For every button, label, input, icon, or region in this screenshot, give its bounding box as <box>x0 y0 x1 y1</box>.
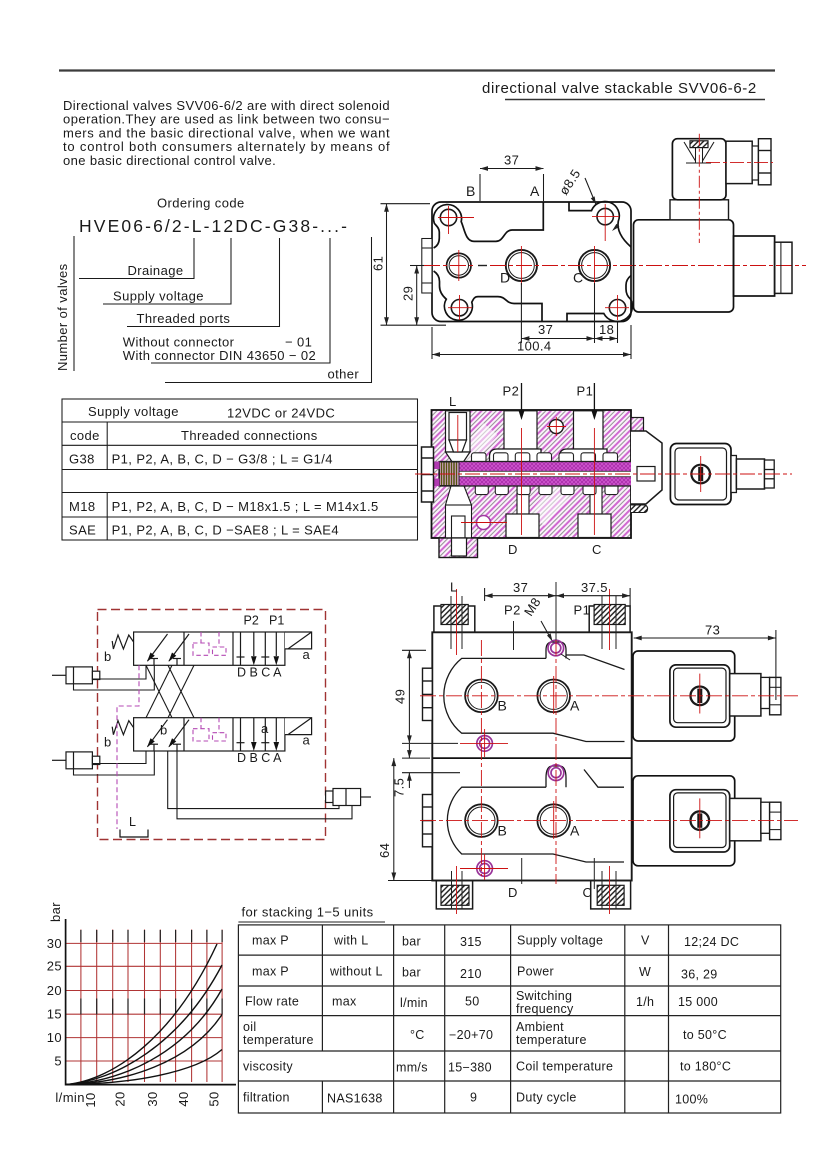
svg-text:P2: P2 <box>503 384 520 399</box>
svg-text:P1: P1 <box>577 384 594 399</box>
svg-text:61: 61 <box>371 256 386 271</box>
svg-text:20: 20 <box>113 1091 128 1106</box>
svg-text:b: b <box>160 723 167 738</box>
svg-text:bar: bar <box>402 935 421 949</box>
svg-text:D: D <box>508 885 518 900</box>
svg-text:temperature: temperature <box>243 1033 314 1047</box>
svg-text:50: 50 <box>465 995 480 1009</box>
svg-text:l/min: l/min <box>400 996 428 1010</box>
svg-text:Supply voltage: Supply voltage <box>113 289 204 304</box>
svg-text:C: C <box>573 270 583 286</box>
svg-text:B: B <box>498 698 507 714</box>
svg-text:with L: with L <box>333 934 368 948</box>
svg-text:max P: max P <box>252 965 289 979</box>
svg-text:Supply voltage: Supply voltage <box>88 404 179 419</box>
svg-text:P1, P2, A, B, C, D − G3/8 ; L: P1, P2, A, B, C, D − G3/8 ; L = G1/4 <box>112 452 333 467</box>
svg-text:oil: oil <box>243 1020 256 1034</box>
svg-text:315: 315 <box>460 935 482 949</box>
svg-text:Threaded connections: Threaded connections <box>181 428 318 443</box>
svg-text:Switching: Switching <box>516 989 572 1003</box>
svg-text:73: 73 <box>705 623 720 638</box>
svg-text:9: 9 <box>470 1091 477 1105</box>
svg-text:15−380: 15−380 <box>448 1061 492 1075</box>
svg-text:bar: bar <box>402 966 421 980</box>
svg-text:for stacking 1−5 units: for stacking 1−5 units <box>242 905 374 920</box>
svg-text:A: A <box>570 698 580 714</box>
svg-text:max: max <box>332 995 357 1009</box>
svg-text:M8: M8 <box>521 595 544 619</box>
svg-text:64: 64 <box>377 843 392 858</box>
svg-text:frequency: frequency <box>516 1002 574 1016</box>
svg-text:a: a <box>303 647 311 662</box>
svg-text:Ordering code: Ordering code <box>157 196 245 211</box>
svg-text:A: A <box>530 183 540 199</box>
svg-text:Drainage: Drainage <box>128 263 184 278</box>
svg-text:D B C A: D B C A <box>237 751 282 765</box>
svg-text:ø8.5: ø8.5 <box>556 166 584 197</box>
svg-text:other: other <box>328 367 360 382</box>
svg-text:18: 18 <box>599 322 614 337</box>
svg-text:Coil temperature: Coil temperature <box>516 1060 613 1074</box>
svg-text:SAE: SAE <box>69 523 96 538</box>
svg-text:10: 10 <box>47 1030 62 1045</box>
svg-text:W: W <box>639 965 651 979</box>
svg-text:30: 30 <box>145 1091 160 1106</box>
svg-text:P2: P2 <box>244 614 259 628</box>
svg-text:Power: Power <box>517 965 554 979</box>
svg-text:P1, P2, A, B, C, D − M18x1.5 ;: P1, P2, A, B, C, D − M18x1.5 ; L = M14x1… <box>112 499 379 514</box>
svg-text:210: 210 <box>460 967 482 981</box>
svg-text:A: A <box>570 823 580 839</box>
svg-text:a: a <box>303 733 311 748</box>
svg-text:12;24 DC: 12;24 DC <box>684 935 739 949</box>
svg-text:without L: without L <box>329 965 383 979</box>
svg-text:37.5: 37.5 <box>581 580 608 595</box>
svg-text:Flow rate: Flow rate <box>245 995 299 1009</box>
svg-text:100%: 100% <box>675 1093 708 1107</box>
svg-text:30: 30 <box>47 936 62 951</box>
svg-text:P1: P1 <box>574 603 591 618</box>
svg-text:5: 5 <box>54 1053 62 1068</box>
svg-text:37: 37 <box>538 322 553 337</box>
svg-text:L: L <box>450 580 458 595</box>
svg-text:Threaded ports: Threaded ports <box>137 311 231 326</box>
svg-text:15: 15 <box>47 1007 62 1022</box>
svg-text:mm/s: mm/s <box>396 1061 428 1075</box>
svg-text:B: B <box>498 823 507 839</box>
svg-text:Duty cycle: Duty cycle <box>516 1091 577 1105</box>
svg-text:max P: max P <box>252 934 289 948</box>
svg-text:to 50°C: to 50°C <box>683 1028 727 1042</box>
svg-text:b: b <box>104 735 111 750</box>
svg-text:37: 37 <box>513 580 528 595</box>
svg-text:1/h: 1/h <box>636 995 654 1009</box>
svg-text:Number of valves: Number of valves <box>55 263 70 371</box>
svg-text:M18: M18 <box>69 499 96 514</box>
svg-text:C: C <box>583 885 593 900</box>
svg-text:P2: P2 <box>504 603 521 618</box>
svg-text:to 180°C: to 180°C <box>680 1060 731 1074</box>
svg-text:With connector DIN 43650 − 02: With connector DIN 43650 − 02 <box>123 348 316 363</box>
svg-text:directional valve stackable: directional valve stackable SVV06-6-2 <box>482 80 757 97</box>
svg-text:12VDC or 24VDC: 12VDC or 24VDC <box>227 406 335 421</box>
svg-text:Supply voltage: Supply voltage <box>517 934 603 948</box>
svg-text:20: 20 <box>47 983 62 998</box>
svg-text:B: B <box>466 183 475 199</box>
svg-text:L: L <box>129 815 136 829</box>
svg-text:P1, P2, A, B, C, D −SAE8 ; L =: P1, P2, A, B, C, D −SAE8 ; L = SAE4 <box>112 523 339 538</box>
svg-text:V: V <box>641 934 650 948</box>
svg-text:Ambient: Ambient <box>516 1020 564 1034</box>
svg-text:NAS1638: NAS1638 <box>327 1092 383 1106</box>
svg-text:code: code <box>70 428 100 443</box>
svg-text:HVE06-6/2-L-12DC-G38-...-: HVE06-6/2-L-12DC-G38-...- <box>79 216 347 236</box>
svg-text:D: D <box>500 270 510 286</box>
svg-text:−20+70: −20+70 <box>449 1028 493 1042</box>
svg-text:D B C A: D B C A <box>237 666 282 680</box>
svg-text:C: C <box>592 542 602 557</box>
svg-text:40: 40 <box>176 1091 191 1106</box>
svg-text:P1: P1 <box>269 614 284 628</box>
svg-text:49: 49 <box>393 689 408 704</box>
svg-text:25: 25 <box>47 959 62 974</box>
svg-text:D: D <box>508 542 518 557</box>
svg-text:29: 29 <box>401 286 416 301</box>
svg-text:a: a <box>261 721 269 736</box>
svg-text:l/min: l/min <box>55 1090 84 1105</box>
svg-text:filtration: filtration <box>243 1091 290 1105</box>
svg-text:10: 10 <box>83 1092 98 1107</box>
svg-text:37: 37 <box>504 153 519 168</box>
svg-text:36, 29: 36, 29 <box>681 968 718 982</box>
svg-text:L: L <box>449 394 457 409</box>
svg-text:bar: bar <box>48 902 63 922</box>
svg-text:G38: G38 <box>69 452 95 467</box>
svg-text:°C: °C <box>410 1028 425 1042</box>
svg-text:temperature: temperature <box>516 1033 587 1047</box>
svg-text:viscosity: viscosity <box>243 1060 293 1074</box>
svg-text:15 000: 15 000 <box>678 995 718 1009</box>
svg-text:50: 50 <box>207 1091 222 1106</box>
svg-text:b: b <box>104 649 111 664</box>
svg-text:one basic directional control: one basic directional control valve. <box>63 153 276 168</box>
svg-text:100.4: 100.4 <box>517 339 552 354</box>
